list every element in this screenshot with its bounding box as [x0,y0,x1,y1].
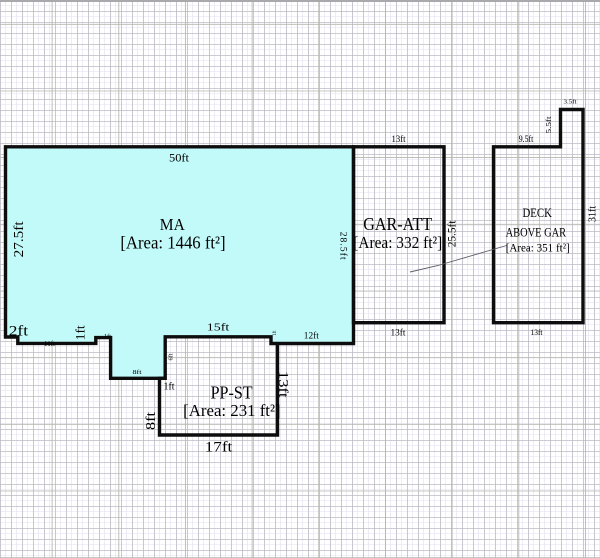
svg-text:50ft: 50ft [169,153,190,165]
svg-text:[Area: 1446 ft²]: [Area: 1446 ft²] [120,232,225,252]
svg-text:27.5ft: 27.5ft [11,221,26,257]
svg-text:17ft: 17ft [205,440,233,456]
svg-text:[Area: 332 ft²]: [Area: 332 ft²] [353,233,442,252]
svg-text:13ft: 13ft [391,328,406,339]
svg-text:ABOVE GAR: ABOVE GAR [506,225,567,239]
svg-text:11ft: 11ft [44,340,55,348]
svg-text:MA: MA [160,215,186,234]
svg-text:PP-ST: PP-ST [211,382,253,402]
svg-text:15ft: 15ft [207,322,230,334]
svg-text:12ft: 12ft [304,331,319,342]
svg-text:1ft: 1ft [72,325,87,340]
svg-text:1ft: 1ft [271,330,278,335]
svg-text:1ft: 1ft [104,333,112,340]
svg-text:9.5ft: 9.5ft [519,134,534,144]
svg-text:2ft: 2ft [9,323,28,339]
svg-text:DECK: DECK [523,206,552,220]
svg-text:13ft: 13ft [275,371,290,398]
svg-text:5.5ft: 5.5ft [545,116,553,133]
svg-text:13ft: 13ft [531,327,544,337]
svg-text:[Area: 231 ft²]: [Area: 231 ft²] [183,401,281,420]
svg-text:31ft: 31ft [588,206,599,222]
svg-text:3.5ft: 3.5ft [564,99,577,106]
svg-text:6ft: 6ft [167,353,174,360]
svg-text:8ft: 8ft [143,412,158,430]
svg-text:13ft: 13ft [392,134,406,144]
svg-text:[Area: 351 ft²]: [Area: 351 ft²] [506,242,570,254]
svg-text:8ft: 8ft [133,369,142,376]
svg-text:GAR-ATT: GAR-ATT [363,214,432,234]
svg-text:25.5ft: 25.5ft [447,220,459,248]
svg-text:1ft: 1ft [164,382,175,393]
